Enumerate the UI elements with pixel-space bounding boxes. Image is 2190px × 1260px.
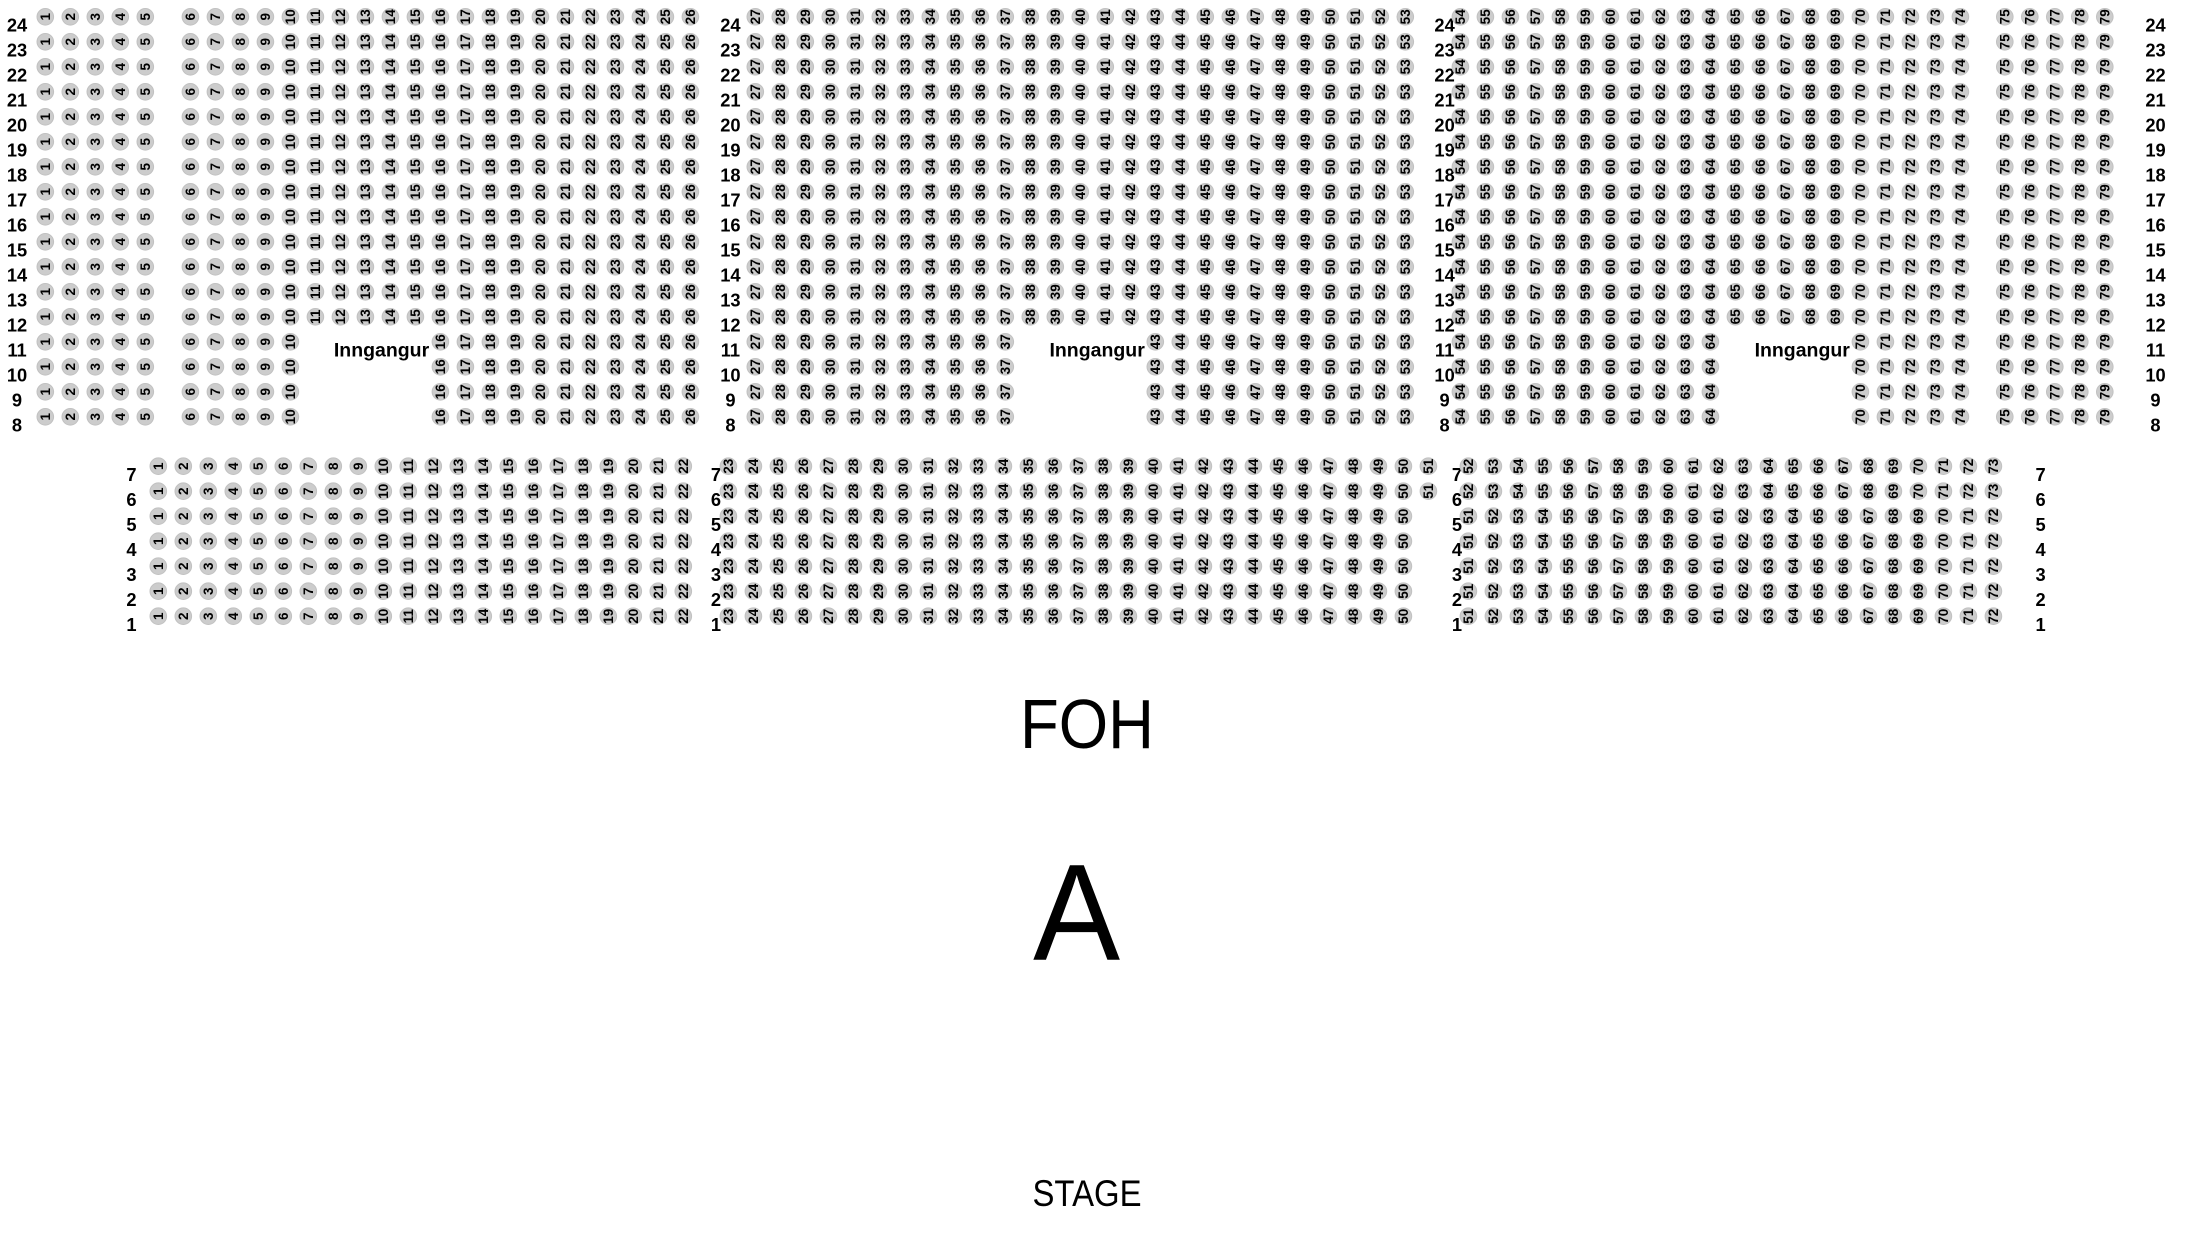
svg-text:68: 68 xyxy=(1803,209,1818,225)
svg-text:31: 31 xyxy=(921,458,936,474)
svg-text:29: 29 xyxy=(871,534,886,549)
svg-text:45: 45 xyxy=(1198,234,1213,250)
svg-text:3: 3 xyxy=(88,313,103,321)
svg-text:73: 73 xyxy=(1928,9,1943,25)
svg-text:66: 66 xyxy=(1836,583,1851,599)
svg-text:72: 72 xyxy=(1986,609,2001,624)
svg-text:35: 35 xyxy=(948,59,963,75)
svg-text:35: 35 xyxy=(948,109,963,125)
svg-text:79: 79 xyxy=(2098,34,2113,49)
svg-text:41: 41 xyxy=(1098,184,1113,200)
svg-text:16: 16 xyxy=(526,608,541,624)
svg-text:40: 40 xyxy=(1146,559,1161,574)
svg-text:48: 48 xyxy=(1273,34,1288,50)
svg-text:18: 18 xyxy=(576,508,591,524)
svg-text:37: 37 xyxy=(998,109,1013,124)
svg-text:64: 64 xyxy=(1786,533,1801,549)
svg-text:58: 58 xyxy=(1553,309,1568,325)
svg-text:3: 3 xyxy=(88,13,103,21)
svg-text:35: 35 xyxy=(948,134,963,150)
svg-text:64: 64 xyxy=(1703,159,1718,175)
svg-text:10: 10 xyxy=(283,209,298,224)
svg-text:23: 23 xyxy=(608,84,623,100)
svg-text:8: 8 xyxy=(725,415,735,436)
svg-text:21: 21 xyxy=(558,84,573,100)
svg-text:26: 26 xyxy=(683,159,698,175)
svg-text:73: 73 xyxy=(1928,159,1943,175)
svg-text:8: 8 xyxy=(233,238,248,246)
svg-text:7: 7 xyxy=(208,413,223,421)
svg-text:27: 27 xyxy=(821,584,836,599)
svg-text:Inngangur: Inngangur xyxy=(334,340,430,362)
svg-text:42: 42 xyxy=(1123,184,1138,199)
svg-text:14: 14 xyxy=(383,134,398,150)
svg-text:60: 60 xyxy=(1603,334,1618,349)
svg-text:18: 18 xyxy=(483,234,498,250)
svg-text:52: 52 xyxy=(1461,459,1476,474)
svg-text:43: 43 xyxy=(1148,309,1163,325)
svg-text:19: 19 xyxy=(508,359,523,374)
svg-text:68: 68 xyxy=(1803,159,1818,175)
svg-text:45: 45 xyxy=(1271,458,1286,474)
svg-text:11: 11 xyxy=(308,159,323,174)
svg-text:56: 56 xyxy=(1503,209,1518,225)
svg-text:A: A xyxy=(1033,837,1120,990)
svg-text:22: 22 xyxy=(583,134,598,149)
svg-text:8: 8 xyxy=(326,462,341,470)
svg-text:8: 8 xyxy=(233,138,248,146)
svg-text:43: 43 xyxy=(1148,109,1163,125)
svg-text:43: 43 xyxy=(1221,483,1236,499)
svg-text:40: 40 xyxy=(1073,259,1088,274)
svg-text:23: 23 xyxy=(721,608,736,624)
svg-text:31: 31 xyxy=(848,184,863,200)
svg-text:8: 8 xyxy=(233,63,248,71)
svg-text:65: 65 xyxy=(1728,34,1743,50)
svg-text:4: 4 xyxy=(113,163,128,171)
svg-text:2: 2 xyxy=(63,338,78,346)
svg-text:35: 35 xyxy=(948,334,963,350)
svg-text:12: 12 xyxy=(2145,315,2165,336)
svg-text:78: 78 xyxy=(2073,34,2088,50)
svg-text:20: 20 xyxy=(533,134,548,149)
svg-text:64: 64 xyxy=(1761,458,1776,474)
svg-text:8: 8 xyxy=(233,338,248,346)
svg-text:39: 39 xyxy=(1121,484,1136,499)
svg-text:21: 21 xyxy=(651,608,666,624)
svg-text:31: 31 xyxy=(921,583,936,599)
svg-text:63: 63 xyxy=(1678,134,1693,150)
svg-text:18: 18 xyxy=(576,458,591,474)
svg-text:9: 9 xyxy=(258,113,273,121)
svg-text:46: 46 xyxy=(1223,234,1238,250)
svg-text:34: 34 xyxy=(923,109,938,125)
svg-text:1: 1 xyxy=(38,213,53,221)
svg-text:70: 70 xyxy=(1936,559,1951,574)
svg-text:30: 30 xyxy=(823,384,838,399)
svg-text:43: 43 xyxy=(1148,334,1163,350)
svg-text:79: 79 xyxy=(2098,284,2113,299)
svg-text:28: 28 xyxy=(773,359,788,375)
svg-text:55: 55 xyxy=(1561,608,1576,624)
svg-text:19: 19 xyxy=(508,334,523,349)
svg-text:13: 13 xyxy=(358,309,373,325)
svg-text:47: 47 xyxy=(1248,9,1263,24)
svg-text:35: 35 xyxy=(948,84,963,100)
svg-text:71: 71 xyxy=(1961,508,1976,524)
svg-text:21: 21 xyxy=(7,90,27,111)
svg-text:74: 74 xyxy=(1953,134,1968,150)
svg-text:18: 18 xyxy=(483,109,498,125)
svg-text:8: 8 xyxy=(233,88,248,96)
svg-text:74: 74 xyxy=(1953,84,1968,100)
svg-text:38: 38 xyxy=(1096,558,1111,574)
svg-text:38: 38 xyxy=(1023,259,1038,275)
svg-text:6: 6 xyxy=(2036,489,2046,510)
svg-text:53: 53 xyxy=(1511,608,1526,624)
svg-text:55: 55 xyxy=(1561,533,1576,549)
svg-text:57: 57 xyxy=(1528,334,1543,349)
svg-text:79: 79 xyxy=(2098,409,2113,424)
svg-text:10: 10 xyxy=(376,459,391,474)
svg-text:54: 54 xyxy=(1536,508,1551,524)
svg-text:36: 36 xyxy=(973,359,988,375)
svg-text:16: 16 xyxy=(433,284,448,300)
svg-text:3: 3 xyxy=(88,213,103,221)
svg-text:32: 32 xyxy=(946,559,961,574)
svg-text:25: 25 xyxy=(658,34,673,50)
svg-text:24: 24 xyxy=(633,9,648,25)
svg-text:23: 23 xyxy=(608,109,623,125)
svg-text:52: 52 xyxy=(1373,334,1388,349)
svg-text:35: 35 xyxy=(1021,533,1036,549)
svg-text:49: 49 xyxy=(1298,34,1313,49)
svg-text:66: 66 xyxy=(1753,284,1768,300)
svg-text:28: 28 xyxy=(773,259,788,275)
svg-text:47: 47 xyxy=(1248,334,1263,349)
svg-text:20: 20 xyxy=(533,309,548,324)
svg-text:43: 43 xyxy=(1148,9,1163,25)
svg-text:57: 57 xyxy=(1528,184,1543,199)
svg-text:31: 31 xyxy=(848,409,863,425)
svg-text:74: 74 xyxy=(1953,384,1968,400)
svg-text:39: 39 xyxy=(1048,134,1063,149)
svg-text:30: 30 xyxy=(823,409,838,424)
svg-text:45: 45 xyxy=(1198,284,1213,300)
svg-text:32: 32 xyxy=(873,84,888,99)
svg-text:9: 9 xyxy=(258,288,273,296)
svg-text:62: 62 xyxy=(1653,84,1668,99)
svg-text:57: 57 xyxy=(1611,509,1626,524)
svg-text:23: 23 xyxy=(720,40,740,61)
svg-text:28: 28 xyxy=(773,184,788,200)
svg-text:46: 46 xyxy=(1223,134,1238,150)
svg-text:53: 53 xyxy=(1511,558,1526,574)
svg-text:70: 70 xyxy=(1853,59,1868,74)
svg-text:6: 6 xyxy=(183,363,198,371)
svg-text:3: 3 xyxy=(201,537,216,545)
svg-text:77: 77 xyxy=(2048,109,2063,124)
svg-text:16: 16 xyxy=(433,59,448,75)
svg-text:21: 21 xyxy=(558,9,573,25)
svg-text:48: 48 xyxy=(1346,458,1361,474)
svg-text:16: 16 xyxy=(526,508,541,524)
svg-text:1: 1 xyxy=(38,313,53,321)
svg-text:64: 64 xyxy=(1703,59,1718,75)
svg-text:21: 21 xyxy=(558,159,573,175)
svg-text:66: 66 xyxy=(1753,59,1768,75)
svg-text:40: 40 xyxy=(1146,509,1161,524)
svg-text:71: 71 xyxy=(1878,384,1893,400)
svg-text:23: 23 xyxy=(721,558,736,574)
svg-text:6: 6 xyxy=(183,163,198,171)
svg-text:78: 78 xyxy=(2073,59,2088,75)
svg-text:1: 1 xyxy=(151,512,166,520)
svg-text:41: 41 xyxy=(1098,34,1113,50)
svg-text:28: 28 xyxy=(773,34,788,50)
svg-text:25: 25 xyxy=(658,284,673,300)
svg-text:15: 15 xyxy=(501,483,516,499)
svg-text:79: 79 xyxy=(2098,84,2113,99)
svg-text:63: 63 xyxy=(1678,34,1693,50)
svg-text:6: 6 xyxy=(276,512,291,520)
svg-text:29: 29 xyxy=(798,334,813,349)
svg-text:67: 67 xyxy=(1778,134,1793,149)
svg-text:22: 22 xyxy=(583,34,598,49)
svg-text:53: 53 xyxy=(1398,9,1413,25)
svg-text:67: 67 xyxy=(1778,184,1793,199)
svg-text:65: 65 xyxy=(1728,84,1743,100)
svg-text:35: 35 xyxy=(948,184,963,200)
svg-text:34: 34 xyxy=(996,533,1011,549)
svg-text:15: 15 xyxy=(408,109,423,125)
svg-text:7: 7 xyxy=(126,464,136,485)
svg-text:2: 2 xyxy=(63,163,78,171)
svg-text:32: 32 xyxy=(873,159,888,174)
svg-text:10: 10 xyxy=(283,9,298,24)
svg-text:75: 75 xyxy=(1998,109,2013,125)
svg-text:60: 60 xyxy=(1603,9,1618,24)
svg-text:2: 2 xyxy=(176,512,191,520)
svg-text:79: 79 xyxy=(2098,384,2113,399)
svg-text:68: 68 xyxy=(1803,84,1818,100)
svg-text:70: 70 xyxy=(1853,334,1868,349)
svg-text:7: 7 xyxy=(301,487,316,495)
svg-text:28: 28 xyxy=(846,608,861,624)
svg-text:67: 67 xyxy=(1778,284,1793,299)
svg-text:5: 5 xyxy=(138,138,153,146)
svg-text:55: 55 xyxy=(1478,384,1493,400)
svg-text:61: 61 xyxy=(1628,334,1643,350)
svg-text:15: 15 xyxy=(501,608,516,624)
svg-text:72: 72 xyxy=(1903,359,1918,374)
svg-text:61: 61 xyxy=(1628,159,1643,175)
svg-text:58: 58 xyxy=(1553,59,1568,75)
svg-text:19: 19 xyxy=(601,584,616,599)
svg-text:21: 21 xyxy=(558,384,573,400)
svg-text:38: 38 xyxy=(1096,608,1111,624)
svg-text:23: 23 xyxy=(608,59,623,75)
svg-text:36: 36 xyxy=(973,209,988,225)
svg-text:36: 36 xyxy=(1046,533,1061,549)
svg-text:17: 17 xyxy=(551,559,566,574)
svg-text:5: 5 xyxy=(138,38,153,46)
svg-text:22: 22 xyxy=(583,409,598,424)
svg-text:26: 26 xyxy=(683,109,698,125)
svg-text:28: 28 xyxy=(773,159,788,175)
svg-text:54: 54 xyxy=(1536,533,1551,549)
svg-text:30: 30 xyxy=(823,184,838,199)
svg-text:54: 54 xyxy=(1536,608,1551,624)
svg-text:72: 72 xyxy=(1903,34,1918,49)
svg-text:59: 59 xyxy=(1578,59,1593,74)
svg-text:73: 73 xyxy=(1928,309,1943,325)
svg-text:16: 16 xyxy=(7,215,27,236)
svg-text:13: 13 xyxy=(358,59,373,75)
svg-text:77: 77 xyxy=(2048,84,2063,99)
svg-text:23: 23 xyxy=(608,234,623,250)
svg-text:77: 77 xyxy=(2048,284,2063,299)
svg-text:69: 69 xyxy=(1828,84,1843,99)
svg-text:22: 22 xyxy=(720,65,740,86)
svg-text:33: 33 xyxy=(971,608,986,624)
svg-text:76: 76 xyxy=(2023,209,2038,225)
svg-text:67: 67 xyxy=(1861,534,1876,549)
svg-text:54: 54 xyxy=(1453,34,1468,50)
svg-text:22: 22 xyxy=(583,284,598,299)
svg-text:48: 48 xyxy=(1346,533,1361,549)
svg-text:34: 34 xyxy=(996,508,1011,524)
svg-text:3: 3 xyxy=(201,462,216,470)
svg-text:47: 47 xyxy=(1248,309,1263,324)
svg-text:29: 29 xyxy=(798,134,813,149)
svg-text:20: 20 xyxy=(2145,115,2165,136)
svg-text:79: 79 xyxy=(2098,159,2113,174)
svg-text:18: 18 xyxy=(576,558,591,574)
svg-text:44: 44 xyxy=(1173,84,1188,100)
svg-text:64: 64 xyxy=(1786,558,1801,574)
svg-text:7: 7 xyxy=(208,63,223,71)
svg-text:67: 67 xyxy=(1778,259,1793,274)
svg-text:2: 2 xyxy=(176,612,191,620)
svg-text:9: 9 xyxy=(351,462,366,470)
svg-text:79: 79 xyxy=(2098,359,2113,374)
svg-text:33: 33 xyxy=(898,359,913,375)
svg-text:26: 26 xyxy=(683,209,698,225)
svg-text:43: 43 xyxy=(1148,409,1163,425)
svg-text:28: 28 xyxy=(846,558,861,574)
svg-text:77: 77 xyxy=(2048,334,2063,349)
svg-text:67: 67 xyxy=(1778,234,1793,249)
svg-text:72: 72 xyxy=(1903,209,1918,224)
svg-text:4: 4 xyxy=(126,539,137,560)
svg-text:13: 13 xyxy=(2145,290,2165,311)
svg-text:10: 10 xyxy=(283,259,298,274)
svg-text:49: 49 xyxy=(1371,584,1386,599)
svg-text:16: 16 xyxy=(433,9,448,25)
svg-text:41: 41 xyxy=(1098,9,1113,25)
svg-text:27: 27 xyxy=(748,134,763,149)
svg-text:1: 1 xyxy=(38,188,53,196)
svg-text:22: 22 xyxy=(583,109,598,124)
svg-text:76: 76 xyxy=(2023,134,2038,150)
svg-text:52: 52 xyxy=(1486,509,1501,524)
svg-text:51: 51 xyxy=(1461,508,1476,524)
svg-text:5: 5 xyxy=(2036,514,2046,535)
svg-text:25: 25 xyxy=(658,84,673,100)
svg-text:24: 24 xyxy=(746,583,761,599)
svg-text:27: 27 xyxy=(748,84,763,99)
svg-text:75: 75 xyxy=(1998,134,2013,150)
svg-text:73: 73 xyxy=(1928,84,1943,100)
svg-text:34: 34 xyxy=(923,134,938,150)
svg-text:27: 27 xyxy=(821,534,836,549)
svg-text:75: 75 xyxy=(1998,34,2013,50)
svg-text:9: 9 xyxy=(351,487,366,495)
svg-text:12: 12 xyxy=(333,34,348,49)
svg-text:74: 74 xyxy=(1953,184,1968,200)
svg-text:51: 51 xyxy=(1348,334,1363,350)
svg-text:77: 77 xyxy=(2048,34,2063,49)
svg-text:49: 49 xyxy=(1298,184,1313,199)
svg-text:34: 34 xyxy=(923,284,938,300)
svg-text:44: 44 xyxy=(1173,284,1188,300)
svg-text:19: 19 xyxy=(508,134,523,149)
svg-text:39: 39 xyxy=(1048,184,1063,199)
svg-text:49: 49 xyxy=(1298,84,1313,99)
svg-text:10: 10 xyxy=(283,334,298,349)
svg-text:18: 18 xyxy=(576,533,591,549)
svg-text:57: 57 xyxy=(1528,84,1543,99)
svg-text:25: 25 xyxy=(658,9,673,25)
svg-text:55: 55 xyxy=(1478,334,1493,350)
svg-text:46: 46 xyxy=(1223,309,1238,325)
svg-text:48: 48 xyxy=(1273,159,1288,175)
svg-text:26: 26 xyxy=(683,259,698,275)
svg-text:63: 63 xyxy=(1678,384,1693,400)
svg-text:34: 34 xyxy=(923,259,938,275)
svg-text:18: 18 xyxy=(576,583,591,599)
svg-text:32: 32 xyxy=(873,409,888,424)
svg-text:22: 22 xyxy=(676,534,691,549)
svg-text:6: 6 xyxy=(183,63,198,71)
svg-text:70: 70 xyxy=(1911,459,1926,474)
svg-text:73: 73 xyxy=(1928,234,1943,250)
svg-text:12: 12 xyxy=(333,159,348,174)
svg-text:52: 52 xyxy=(1373,309,1388,324)
svg-text:29: 29 xyxy=(871,484,886,499)
svg-text:27: 27 xyxy=(748,234,763,249)
svg-text:48: 48 xyxy=(1273,59,1288,75)
svg-text:3: 3 xyxy=(201,612,216,620)
svg-text:8: 8 xyxy=(233,363,248,371)
svg-text:51: 51 xyxy=(1348,159,1363,175)
svg-text:18: 18 xyxy=(576,608,591,624)
svg-text:1: 1 xyxy=(38,338,53,346)
svg-text:61: 61 xyxy=(1711,558,1726,574)
svg-text:5: 5 xyxy=(138,363,153,371)
svg-text:24: 24 xyxy=(746,483,761,499)
svg-text:6: 6 xyxy=(183,288,198,296)
svg-text:55: 55 xyxy=(1478,309,1493,325)
svg-text:47: 47 xyxy=(1321,609,1336,624)
svg-text:46: 46 xyxy=(1296,508,1311,524)
svg-text:72: 72 xyxy=(1986,534,2001,549)
svg-text:45: 45 xyxy=(1271,533,1286,549)
svg-text:55: 55 xyxy=(1478,84,1493,100)
svg-text:64: 64 xyxy=(1703,309,1718,325)
svg-text:75: 75 xyxy=(1998,409,2013,425)
